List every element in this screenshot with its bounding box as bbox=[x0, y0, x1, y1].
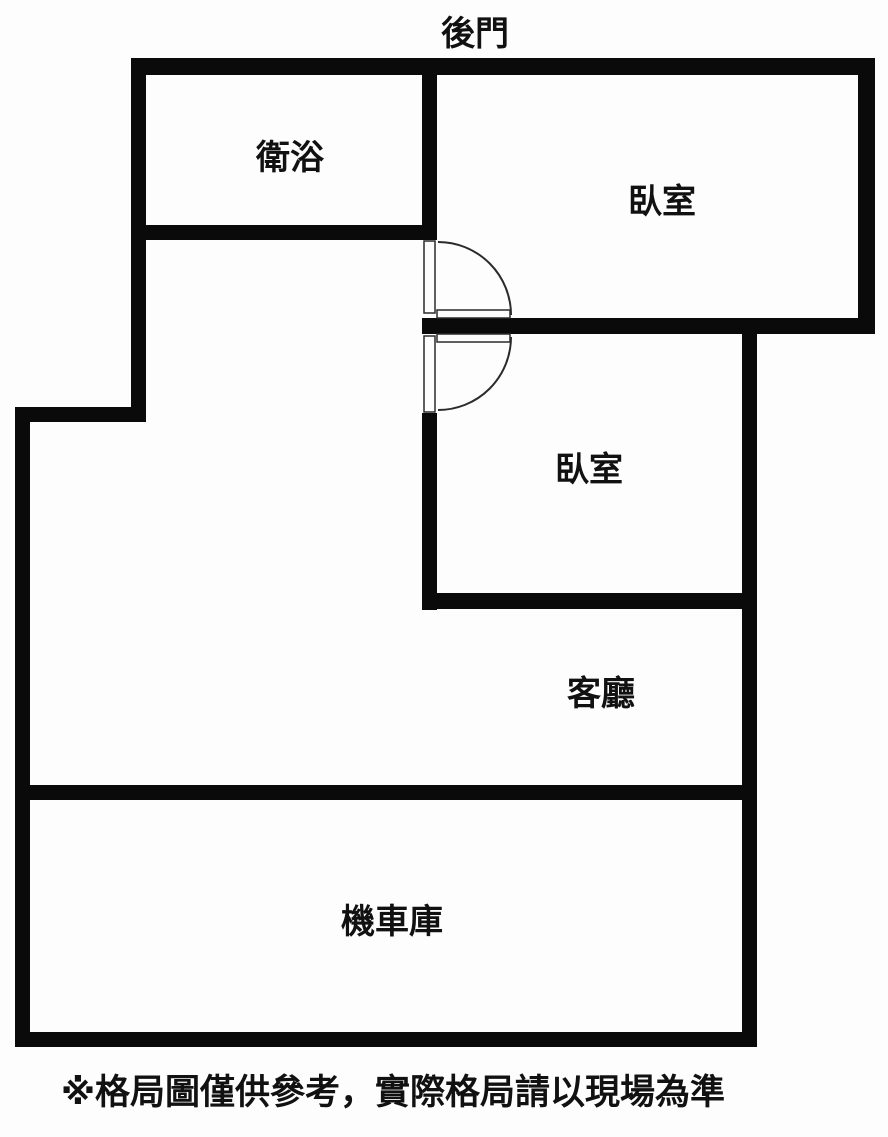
bedroom-top-door-opening bbox=[424, 241, 435, 313]
bedroom-middle-label: 臥室 bbox=[555, 450, 623, 489]
bedroom-middle-door-leaf bbox=[437, 334, 510, 342]
living-room-label: 客廳 bbox=[567, 674, 635, 713]
bedroom-top-door-leaf bbox=[437, 310, 510, 318]
floor-plan-drawing: 後門 衛浴 臥室 臥室 客廳 機車庫 ※格局圖僅供參考，實際格局請以現場為準 bbox=[0, 0, 888, 1137]
wall-bedroom-middle-bottom bbox=[422, 593, 757, 609]
wall-bedrooms-left-upper-segment bbox=[422, 58, 437, 240]
wall-living-room-bottom bbox=[15, 785, 757, 800]
wall-bedrooms-left-lower-segment bbox=[422, 413, 437, 610]
wall-between-bedrooms bbox=[422, 318, 875, 334]
wall-left-outer bbox=[15, 407, 30, 1047]
floor-plan-page: 後門 衛浴 臥室 臥室 客廳 機車庫 ※格局圖僅供參考，實際格局請以現場為準 bbox=[0, 0, 888, 1137]
wall-left-step bbox=[15, 407, 146, 422]
wall-right-upper bbox=[858, 58, 875, 334]
bedroom-middle-door-opening bbox=[424, 336, 435, 412]
bedroom-top-door-swing-arc bbox=[438, 242, 511, 315]
back-door-label: 後門 bbox=[441, 15, 509, 53]
disclaimer-text: ※格局圖僅供參考，實際格局請以現場為準 bbox=[61, 1072, 725, 1112]
garage-label: 機車庫 bbox=[341, 903, 443, 941]
bedroom-top-label: 臥室 bbox=[628, 182, 696, 221]
wall-garage-bottom bbox=[15, 1032, 757, 1047]
bedroom-middle-door-swing-arc bbox=[438, 337, 511, 410]
wall-right-lower bbox=[742, 318, 757, 1047]
bathroom-label: 衛浴 bbox=[255, 139, 325, 177]
wall-bathroom-bottom bbox=[131, 225, 437, 240]
wall-top bbox=[131, 58, 875, 75]
